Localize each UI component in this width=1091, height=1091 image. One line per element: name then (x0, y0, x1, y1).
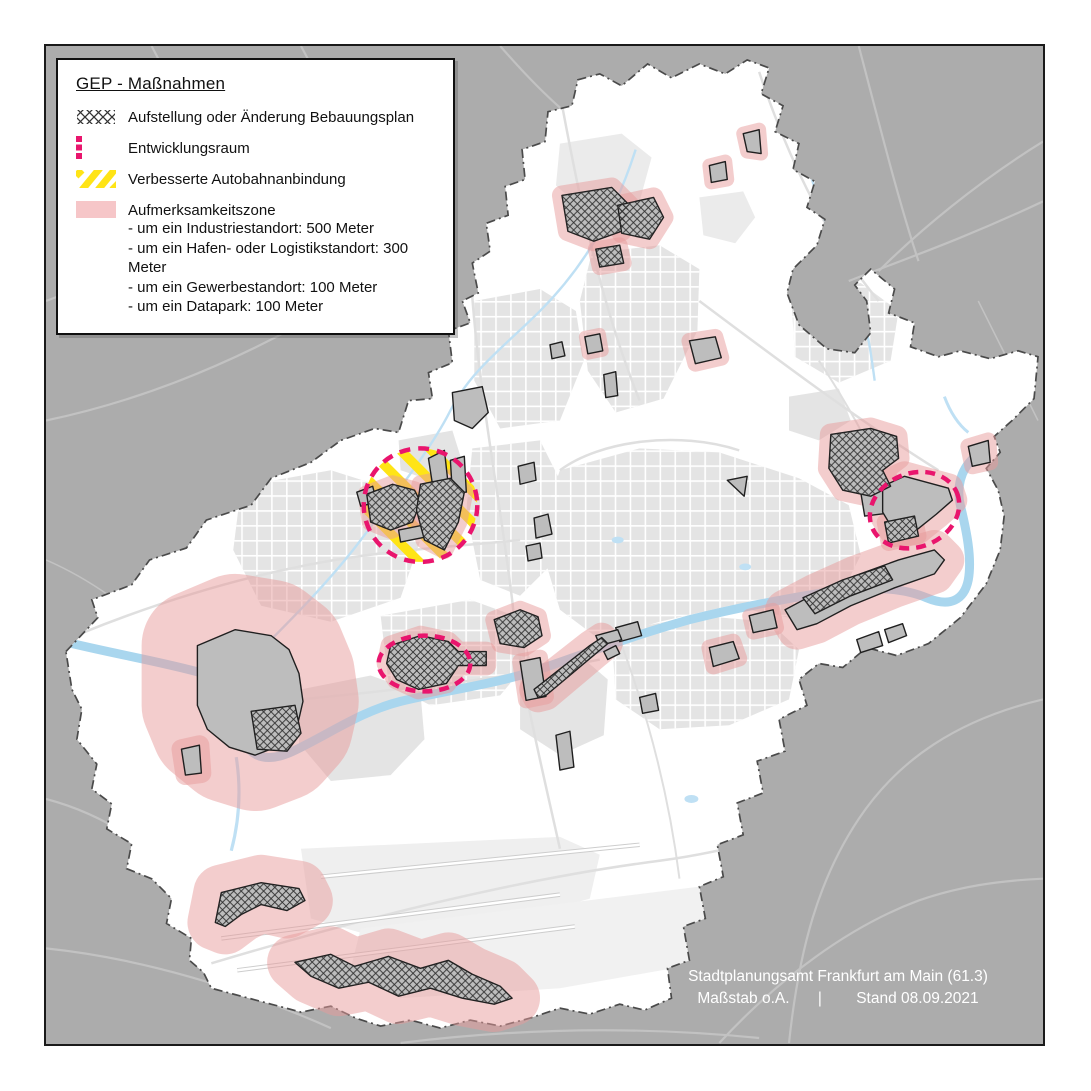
legend-label: Entwicklungsraum (128, 140, 250, 157)
legend-detail-line: - um ein Hafen- oder Logistikstandort: 3… (128, 239, 437, 278)
legend-title: GEP - Maßnahmen (76, 74, 437, 94)
legend-detail-line: - um ein Datapark: 100 Meter (128, 297, 437, 317)
legend-item-aufmerksamkeitszone: Aufmerksamkeitszone (76, 201, 437, 219)
dashed-pink-rect-icon (76, 139, 116, 157)
legend-label: Aufstellung oder Änderung Bebauungsplan (128, 109, 414, 126)
legend-label: Aufmerksamkeitszone (128, 202, 276, 219)
legend-item-entwicklungsraum: Entwicklungsraum (76, 139, 437, 157)
legend-item-autobahn: Verbesserte Autobahnanbindung (76, 170, 437, 188)
attribution-line1: Stadtplanungsamt Frankfurt am Main (61.3… (640, 966, 1036, 988)
plan-page: GEP - Maßnahmen Aufstellung oder Änderun… (0, 0, 1091, 1091)
yellow-stripes-icon (76, 170, 116, 188)
map-attribution: Stadtplanungsamt Frankfurt am Main (61.3… (640, 966, 1036, 1010)
attribution-separator: | (818, 988, 822, 1010)
legend-detail-line: - um ein Industriestandort: 500 Meter (128, 219, 437, 239)
attribution-line2: Maßstab o.A. | Stand 08.09.2021 (640, 988, 1036, 1010)
date-label: Stand 08.09.2021 (856, 988, 978, 1010)
legend-item-bebauungsplan: Aufstellung oder Änderung Bebauungsplan (76, 108, 437, 126)
pond (684, 795, 698, 803)
crosshatch-swatch-icon (76, 108, 116, 126)
scale-label: Maßstab o.A. (697, 988, 789, 1010)
legend-box: GEP - Maßnahmen Aufstellung oder Änderun… (56, 58, 455, 335)
pond (739, 564, 751, 571)
pink-area-icon (76, 201, 116, 219)
legend-detail-line: - um ein Gewerbestandort: 100 Meter (128, 278, 437, 298)
pond (612, 537, 624, 544)
legend-label: Verbesserte Autobahnanbindung (128, 171, 346, 188)
legend-attention-details: - um ein Industriestandort: 500 Meter - … (128, 219, 437, 317)
